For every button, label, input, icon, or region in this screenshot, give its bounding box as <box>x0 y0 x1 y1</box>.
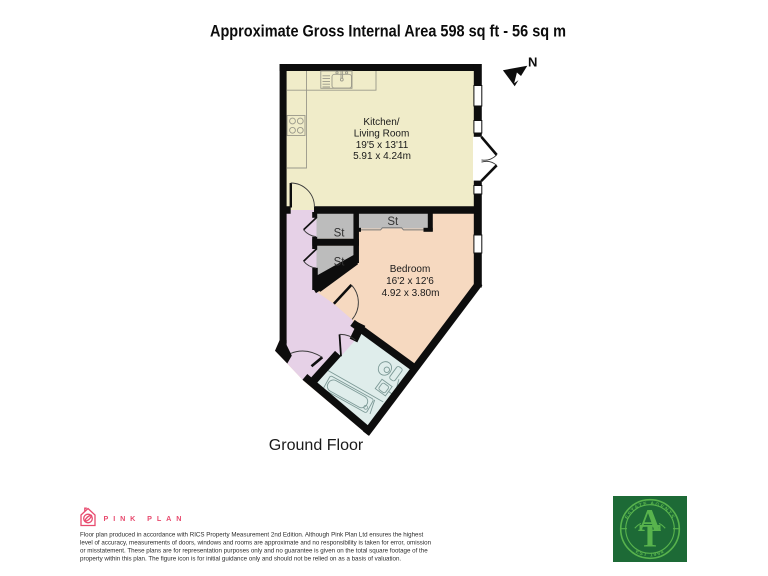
svg-text:N: N <box>528 55 537 70</box>
svg-text:property within this plan. The: property within this plan. The figure ic… <box>80 556 401 563</box>
svg-text:Floor plan produced in accorda: Floor plan produced in accordance with R… <box>80 532 424 539</box>
svg-text:Approximate Gross Internal Are: Approximate Gross Internal Area 598 sq f… <box>210 22 566 41</box>
svg-text:Living Room: Living Room <box>354 128 410 139</box>
svg-text:St: St <box>387 216 399 228</box>
svg-text:or misstatement. These plans a: or misstatement. These plans are for rep… <box>80 548 428 555</box>
svg-text:PINK PLAN: PINK PLAN <box>104 514 187 523</box>
svg-text:level of accuracy, measurement: level of accuracy, measurements of doors… <box>80 540 432 547</box>
svg-text:4.92 x 3.80m: 4.92 x 3.80m <box>382 288 440 299</box>
svg-text:Ground Floor: Ground Floor <box>269 437 364 454</box>
svg-text:5.91 x 4.24m: 5.91 x 4.24m <box>353 151 411 162</box>
svg-text:T: T <box>639 519 661 555</box>
svg-text:16'2 x 12'6: 16'2 x 12'6 <box>386 276 434 287</box>
svg-text:Bedroom: Bedroom <box>390 264 431 275</box>
svg-text:Kitchen/: Kitchen/ <box>363 117 399 128</box>
svg-text:St: St <box>334 257 346 269</box>
svg-text:19'5 x 13'11: 19'5 x 13'11 <box>356 140 409 151</box>
svg-text:St: St <box>334 227 346 239</box>
